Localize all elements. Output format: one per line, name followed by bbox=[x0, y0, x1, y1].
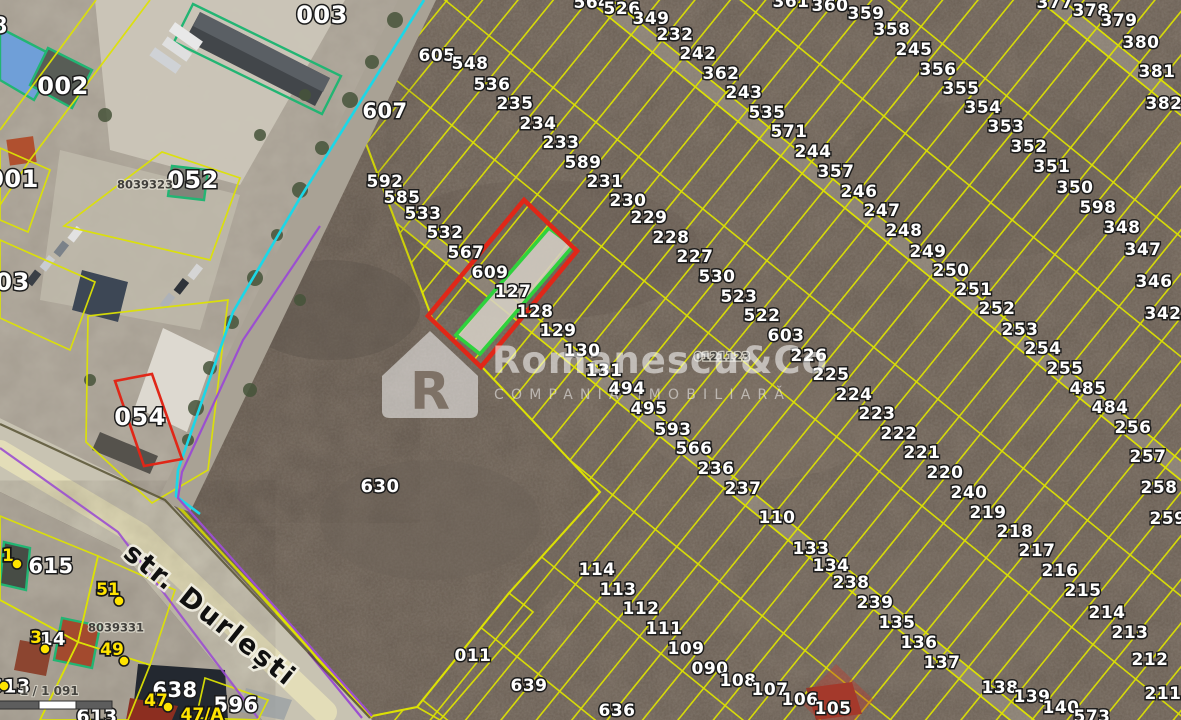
parcel-label-129: 129 bbox=[540, 321, 577, 341]
scale-text: 1 / 1 091 bbox=[20, 684, 79, 698]
parcel-label-362: 362 bbox=[703, 64, 740, 84]
parcel-label-548: 548 bbox=[452, 54, 489, 74]
parcel-label-522: 522 bbox=[744, 306, 781, 326]
parcel-label-223: 223 bbox=[859, 404, 896, 424]
parcel-label-609: 609 bbox=[472, 263, 509, 283]
parcel-label-351: 351 bbox=[1034, 157, 1071, 177]
parcel-label-224: 224 bbox=[836, 385, 873, 405]
parcel-label-212: 212 bbox=[1132, 650, 1169, 670]
parcel-label-112: 112 bbox=[623, 599, 660, 619]
parcel-label-242: 242 bbox=[680, 44, 717, 64]
scale-bar bbox=[0, 701, 112, 709]
address-label-47/A: 47/A bbox=[180, 705, 224, 720]
parcel-label-240: 240 bbox=[951, 483, 988, 503]
parcel-label-248: 248 bbox=[886, 221, 923, 241]
parcel-label-567: 567 bbox=[448, 243, 485, 263]
parcel-label-127: 127 bbox=[495, 282, 532, 302]
parcel-label-533: 533 bbox=[405, 204, 442, 224]
parcel-label-211: 211 bbox=[1145, 684, 1181, 704]
parcel-label-257: 257 bbox=[1130, 447, 1167, 467]
parcel-label-110: 110 bbox=[759, 508, 796, 528]
parcel-label-530: 530 bbox=[699, 267, 736, 287]
parcel-label-246: 246 bbox=[841, 182, 878, 202]
parcel-label-615: 615 bbox=[28, 554, 73, 578]
parcel-label-247: 247 bbox=[864, 201, 901, 221]
address-point-dot bbox=[119, 656, 129, 666]
parcel-label-217: 217 bbox=[1019, 541, 1056, 561]
cadastral-map[interactable]: 0038002001003052054607615638596613613146… bbox=[0, 0, 1181, 720]
parcel-label-259: 259 bbox=[1150, 509, 1181, 529]
parcel-label-536: 536 bbox=[474, 75, 511, 95]
parcel-label-571: 571 bbox=[771, 122, 808, 142]
parcel-label-245: 245 bbox=[896, 40, 933, 60]
parcel-label-243: 243 bbox=[726, 83, 763, 103]
parcel-label-002: 002 bbox=[37, 72, 89, 100]
parcel-label-229: 229 bbox=[631, 208, 668, 228]
parcel-label-218: 218 bbox=[997, 522, 1034, 542]
parcel-label-251: 251 bbox=[956, 280, 993, 300]
map-viewport: 0038002001003052054607615638596613613146… bbox=[0, 0, 1181, 720]
parcel-label-238: 238 bbox=[833, 573, 870, 593]
parcel-label-220: 220 bbox=[927, 463, 964, 483]
parcel-label-215: 215 bbox=[1065, 581, 1102, 601]
address-label-3: 3 bbox=[30, 628, 42, 648]
parcel-label-630: 630 bbox=[360, 476, 399, 497]
parcel-label-377: 377 bbox=[1037, 0, 1074, 13]
parcel-label-256: 256 bbox=[1115, 418, 1152, 438]
parcel-label-380: 380 bbox=[1123, 33, 1160, 53]
parcel-label-252: 252 bbox=[979, 299, 1016, 319]
parcel-label-382: 382 bbox=[1146, 94, 1181, 114]
parcel-label-255: 255 bbox=[1047, 359, 1084, 379]
parcel-label-346: 346 bbox=[1136, 272, 1173, 292]
parcel-label-342: 342 bbox=[1145, 304, 1181, 324]
parcel-label-607: 607 bbox=[362, 99, 407, 123]
parcel-label-222: 222 bbox=[881, 424, 918, 444]
parcel-label-003: 003 bbox=[0, 268, 30, 296]
parcel-label-593: 593 bbox=[655, 420, 692, 440]
address-point-dot bbox=[163, 702, 173, 712]
parcel-label-128: 128 bbox=[517, 302, 554, 322]
parcel-label-356: 356 bbox=[920, 60, 957, 80]
parcel-label-258: 258 bbox=[1141, 478, 1178, 498]
parcel-label-137: 137 bbox=[924, 653, 961, 673]
parcel-label-244: 244 bbox=[795, 142, 832, 162]
parcel-label-361: 361 bbox=[773, 0, 810, 12]
parcel-label-109: 109 bbox=[668, 639, 705, 659]
parcel-label-254: 254 bbox=[1025, 339, 1062, 359]
parcel-label-358: 358 bbox=[874, 20, 911, 40]
parcel-label-221: 221 bbox=[904, 443, 941, 463]
parcel-label-350: 350 bbox=[1057, 178, 1094, 198]
parcel-label-213: 213 bbox=[1112, 623, 1149, 643]
parcel-label-219: 219 bbox=[970, 503, 1007, 523]
parcel-label-381: 381 bbox=[1139, 62, 1176, 82]
parcel-label-228: 228 bbox=[653, 228, 690, 248]
parcel-label-236: 236 bbox=[698, 459, 735, 479]
parcel-label-523: 523 bbox=[721, 287, 758, 307]
address-point-dot bbox=[114, 596, 124, 606]
parcel-label-114: 114 bbox=[579, 560, 616, 580]
parcel-label-233: 233 bbox=[543, 133, 580, 153]
parcel-label-636: 636 bbox=[599, 701, 636, 720]
parcel-label-231: 231 bbox=[587, 172, 624, 192]
parcel-label-052: 052 bbox=[167, 166, 219, 194]
parcel-label-573: 573 bbox=[1074, 707, 1111, 720]
parcel-label-8: 8 bbox=[0, 14, 8, 39]
cadastral-id-label: 8039331 bbox=[88, 621, 144, 635]
watermark-logo-letter: R bbox=[410, 362, 450, 422]
parcel-label-253: 253 bbox=[1002, 320, 1039, 340]
parcel-label-598: 598 bbox=[1080, 198, 1117, 218]
parcel-label-639: 639 bbox=[511, 676, 548, 696]
parcel-label-532: 532 bbox=[427, 223, 464, 243]
parcel-label-216: 216 bbox=[1042, 561, 1079, 581]
parcel-label-011: 011 bbox=[455, 646, 492, 666]
parcel-label-234: 234 bbox=[520, 114, 557, 134]
parcel-label-379: 379 bbox=[1101, 11, 1138, 31]
parcel-label-353: 353 bbox=[988, 117, 1025, 137]
parcel-label-237: 237 bbox=[725, 479, 762, 499]
parcel-label-605: 605 bbox=[419, 46, 456, 66]
parcel-label-354: 354 bbox=[965, 98, 1002, 118]
parcel-label-054: 054 bbox=[114, 403, 166, 431]
parcel-label-106: 106 bbox=[782, 690, 819, 710]
parcel-label-360: 360 bbox=[812, 0, 849, 16]
parcel-label-003: 003 bbox=[296, 1, 348, 29]
parcel-label-001: 001 bbox=[0, 165, 39, 193]
parcel-label-535: 535 bbox=[749, 103, 786, 123]
watermark-brand: Romanescu&Co bbox=[492, 339, 828, 382]
parcel-label-249: 249 bbox=[910, 242, 947, 262]
parcel-label-239: 239 bbox=[857, 593, 894, 613]
parcel-label-113: 113 bbox=[600, 580, 637, 600]
parcel-label-357: 357 bbox=[818, 162, 855, 182]
parcel-label-227: 227 bbox=[677, 247, 714, 267]
parcel-label-214: 214 bbox=[1089, 603, 1126, 623]
parcel-label-111: 111 bbox=[646, 619, 683, 639]
address-point-dot bbox=[0, 681, 9, 691]
parcel-label-105: 105 bbox=[815, 699, 852, 719]
parcel-label-232: 232 bbox=[657, 25, 694, 45]
parcel-label-484: 484 bbox=[1092, 398, 1129, 418]
parcel-label-136: 136 bbox=[901, 633, 938, 653]
parcel-label-566: 566 bbox=[676, 439, 713, 459]
address-point-dot bbox=[40, 644, 50, 654]
watermark-subtitle: COMPANIA IMOBILIARĂ bbox=[494, 385, 791, 403]
parcel-label-347: 347 bbox=[1125, 240, 1162, 260]
parcel-label-135: 135 bbox=[879, 613, 916, 633]
parcel-label-250: 250 bbox=[933, 261, 970, 281]
parcel-label-355: 355 bbox=[943, 79, 980, 99]
parcel-label-235: 235 bbox=[497, 94, 534, 114]
cadastral-id-label: 8039323 bbox=[117, 178, 173, 192]
address-point-dot bbox=[12, 559, 22, 569]
parcel-label-348: 348 bbox=[1104, 218, 1141, 238]
parcel-label-589: 589 bbox=[565, 153, 602, 173]
parcel-label-485: 485 bbox=[1070, 379, 1107, 399]
parcel-label-352: 352 bbox=[1011, 137, 1048, 157]
